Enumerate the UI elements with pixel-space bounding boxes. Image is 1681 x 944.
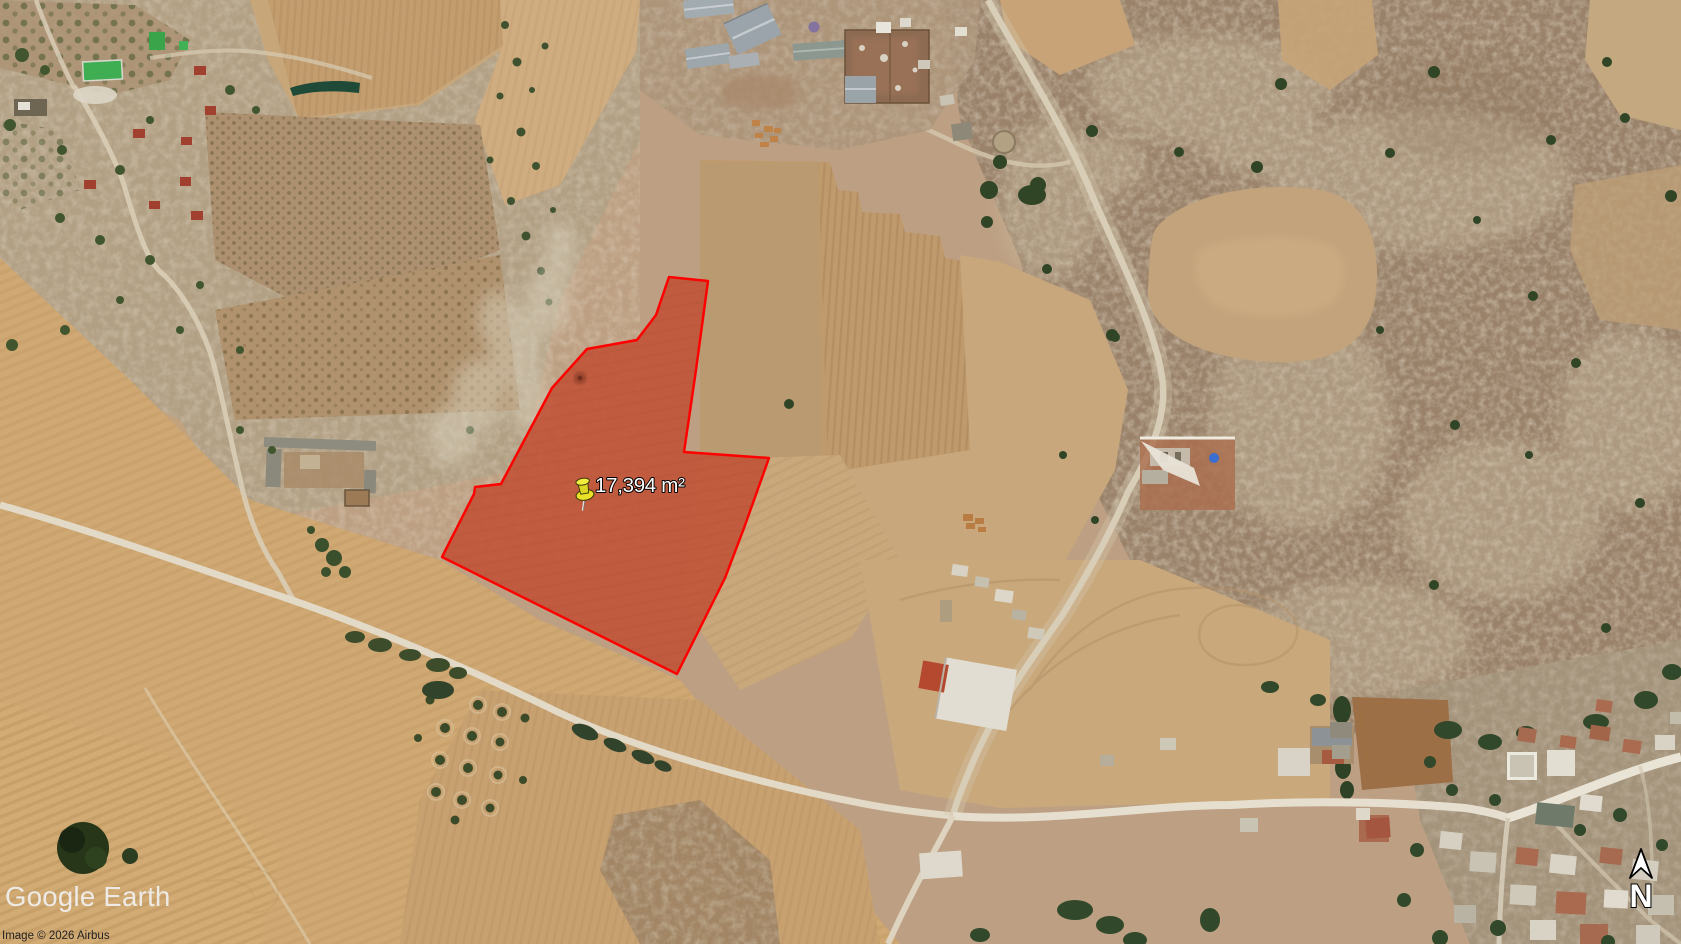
svg-text:Google Earth: Google Earth (5, 881, 171, 912)
svg-text:N: N (1629, 878, 1652, 914)
svg-text:Image © 2026 Airbus: Image © 2026 Airbus (2, 930, 110, 942)
svg-text:17,394 m²: 17,394 m² (595, 474, 685, 497)
